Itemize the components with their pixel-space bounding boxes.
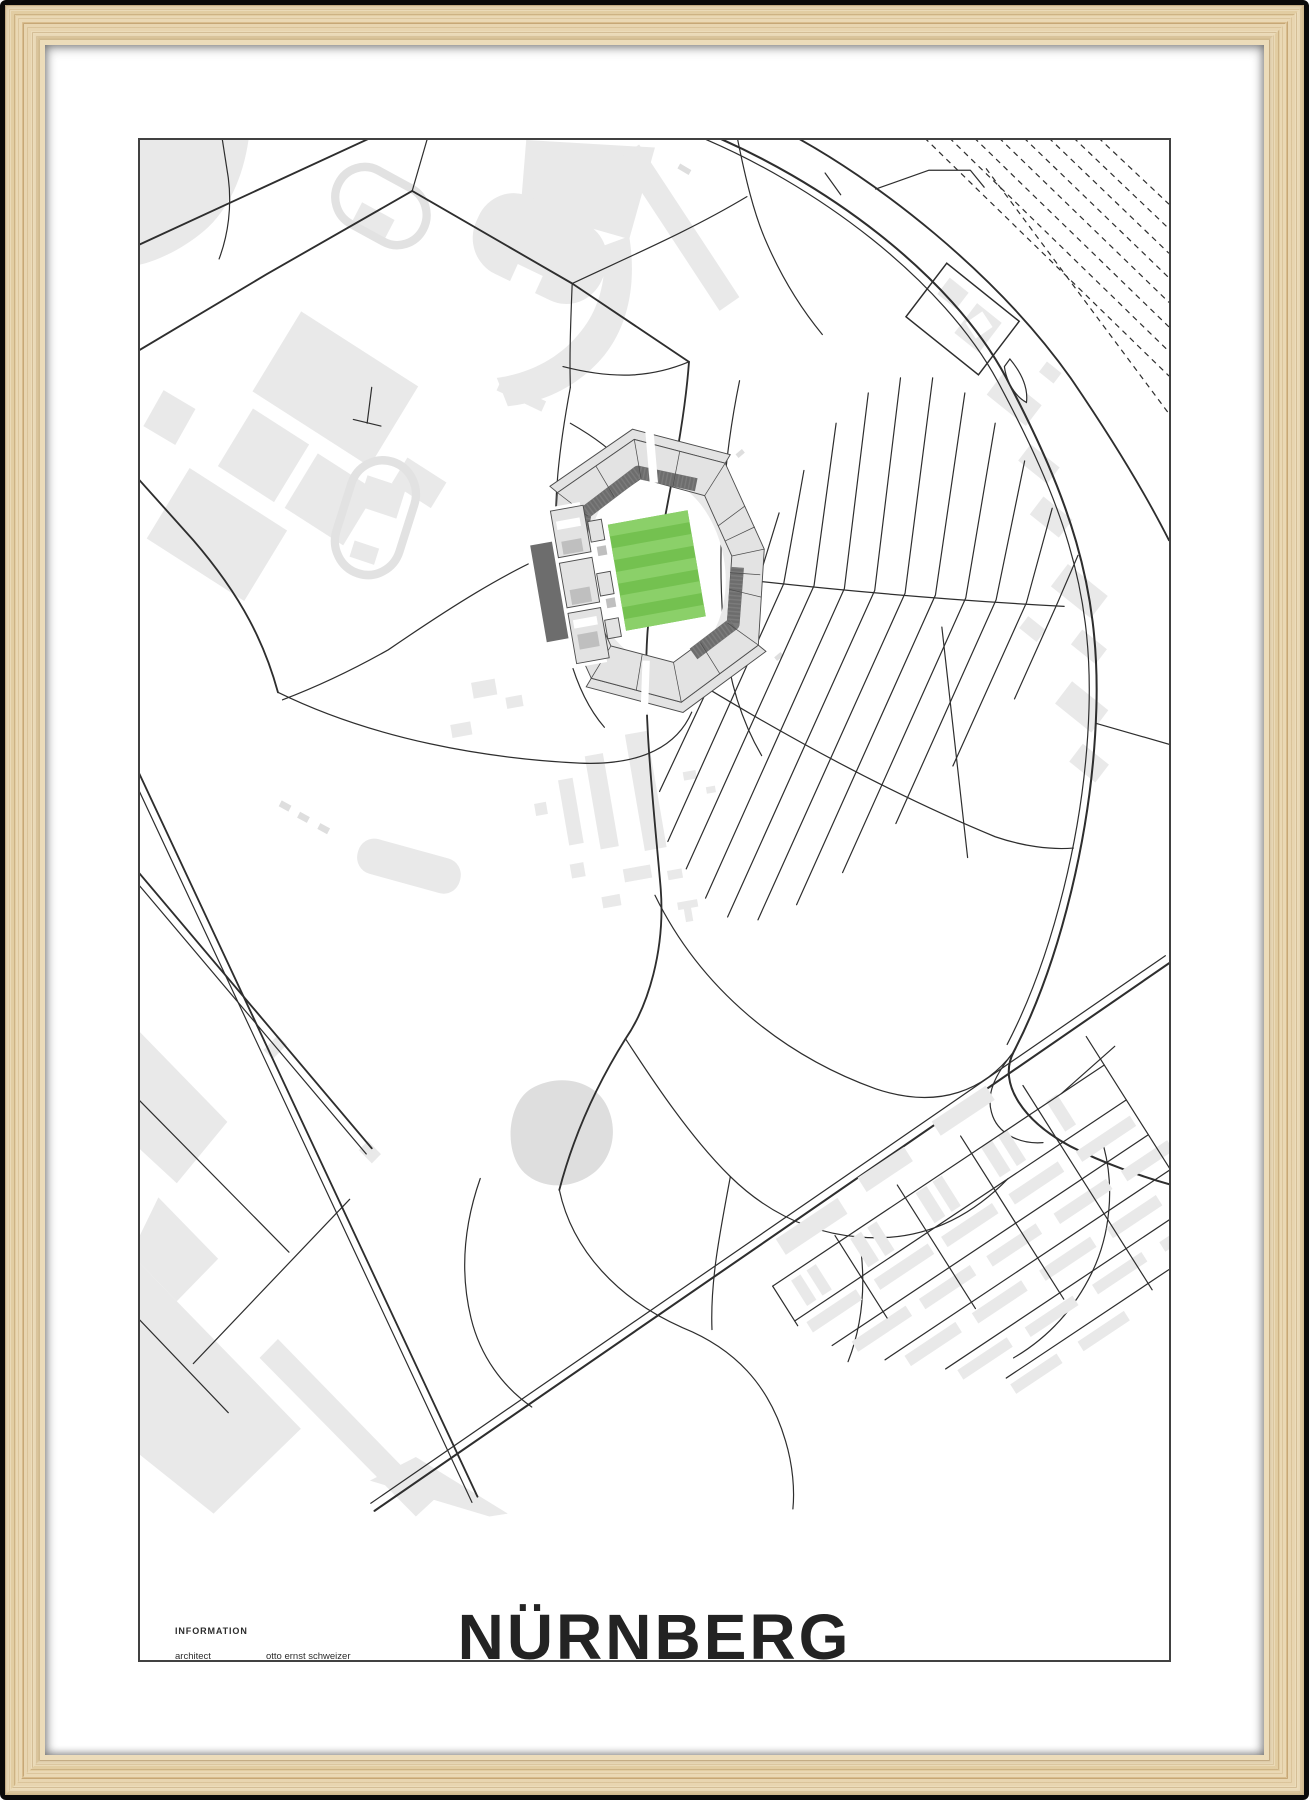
- page-title: NÜRNBERG: [140, 1600, 1169, 1662]
- poster-print-area: INFORMATION architect otto ernst schweiz…: [138, 138, 1171, 1662]
- wood-frame-top: [5, 5, 1304, 40]
- stadium-pitch: [608, 510, 706, 630]
- wood-frame-right: [1269, 5, 1304, 1795]
- residential-district: [747, 1017, 1169, 1478]
- map-small-buildings-park: [279, 800, 465, 897]
- map-buildings-west-of-stadium: [444, 674, 527, 738]
- map-pond: [511, 1080, 613, 1185]
- city-map: [140, 140, 1169, 1660]
- poster-photo: { "poster": { "title": "NÜRNBERG", "coor…: [0, 0, 1309, 1800]
- matte-border: INFORMATION architect otto ernst schweiz…: [45, 45, 1264, 1755]
- map-buildings-below-stadium: [525, 721, 736, 946]
- map-buildings-railway-side: [758, 263, 1169, 782]
- map-sports-park-top-center: [458, 140, 739, 412]
- wood-frame-bottom: [5, 1760, 1304, 1795]
- wood-frame-left: [5, 5, 40, 1795]
- picture-frame: INFORMATION architect otto ernst schweiz…: [0, 0, 1309, 1800]
- map-track-field-top-left: [325, 156, 437, 255]
- wood-frame: INFORMATION architect otto ernst schweiz…: [5, 5, 1304, 1795]
- stadium: [509, 410, 789, 735]
